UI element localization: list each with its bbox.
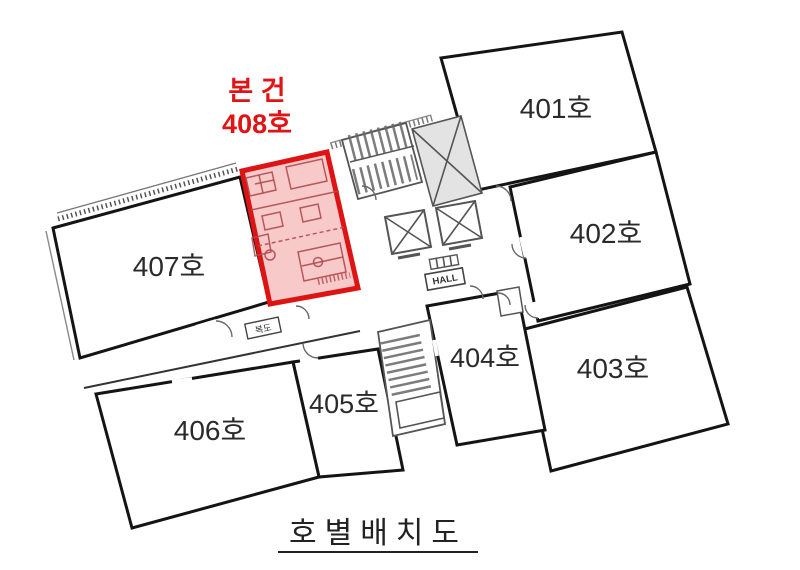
unit-403-label: 403호	[577, 353, 649, 384]
unit-402-label: 402호	[570, 218, 642, 249]
unit-405-label: 405호	[309, 389, 379, 419]
unit-406-label: 406호	[174, 415, 246, 446]
subject-annotation-line2: 408호	[222, 109, 292, 139]
unit-401-label: 401호	[520, 93, 592, 124]
subject-annotation-line1: 본 건	[228, 76, 285, 106]
floor-plan-page: HALL 복도	[0, 0, 800, 570]
unit-404-label: 404호	[450, 343, 520, 373]
unit-407-label: 407호	[133, 251, 205, 282]
page-title: 호별배치도	[289, 517, 467, 550]
floor-plan-svg: HALL 복도	[0, 0, 800, 570]
